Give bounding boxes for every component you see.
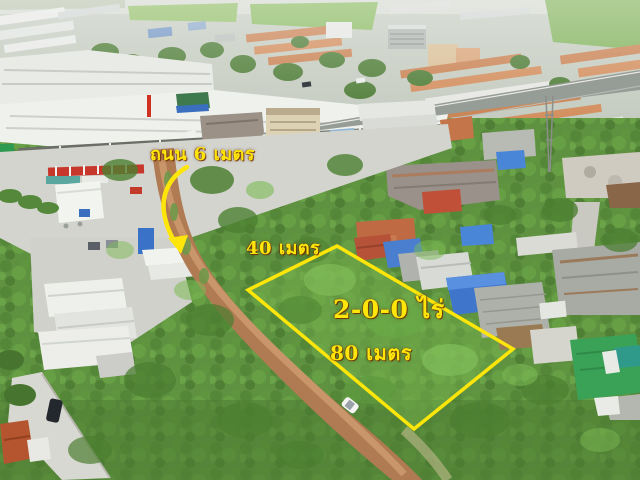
aerial-land-listing-photo: ถนน 6 เมตร 40 เมตร 2-0-0 ไร่ 80 เมตร: [0, 0, 640, 480]
plot-length-label: 80 เมตร: [330, 343, 412, 363]
road-width-label: ถนน 6 เมตร: [150, 146, 255, 164]
red-flag-pole: [147, 95, 151, 117]
plot-width-label: 40 เมตร: [246, 240, 320, 258]
red-truck: [130, 187, 142, 194]
plot-area-label: 2-0-0 ไร่: [333, 297, 445, 322]
